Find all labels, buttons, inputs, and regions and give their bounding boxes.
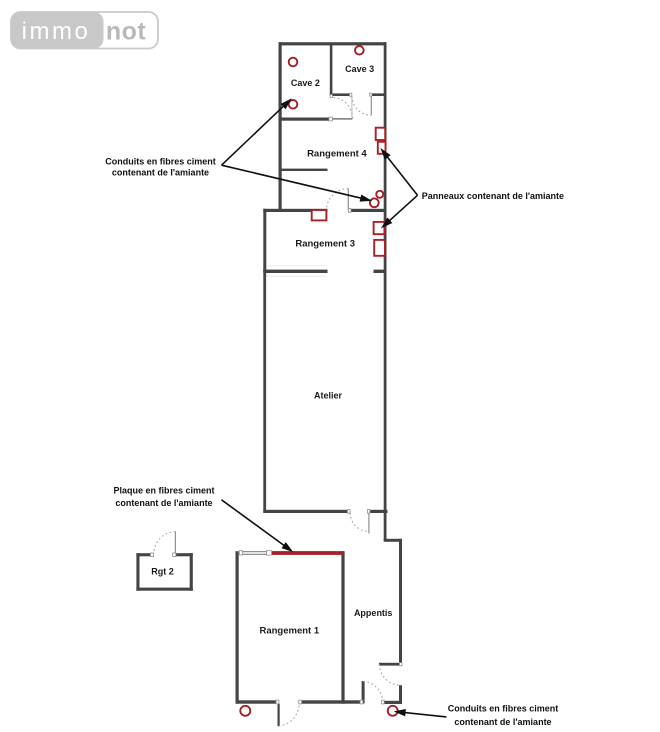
svg-text:Appentis: Appentis — [354, 608, 393, 618]
svg-text:immo: immo — [22, 18, 91, 45]
svg-text:Rangement 1: Rangement 1 — [259, 626, 319, 637]
svg-text:Panneaux contenant de l'amiant: Panneaux contenant de l'amiante — [422, 191, 564, 201]
svg-text:Cave 2: Cave 2 — [291, 78, 320, 88]
svg-text:contenant de l'amiante: contenant de l'amiante — [112, 167, 209, 177]
svg-text:contenant de l'amiante: contenant de l'amiante — [454, 717, 551, 727]
svg-text:not: not — [106, 18, 147, 46]
svg-text:Rangement 4: Rangement 4 — [307, 149, 367, 160]
svg-text:Conduits en fibres ciment: Conduits en fibres ciment — [105, 156, 216, 166]
svg-text:Conduits en fibres ciment: Conduits en fibres ciment — [448, 704, 559, 714]
svg-text:Atelier: Atelier — [314, 391, 343, 401]
svg-text:Rangement 3: Rangement 3 — [295, 239, 355, 250]
svg-text:Cave 3: Cave 3 — [345, 64, 374, 74]
svg-text:Rgt 2: Rgt 2 — [151, 566, 174, 576]
svg-text:contenant de l'amiante: contenant de l'amiante — [115, 498, 212, 508]
svg-text:Plaque en fibres ciment: Plaque en fibres ciment — [113, 485, 214, 495]
